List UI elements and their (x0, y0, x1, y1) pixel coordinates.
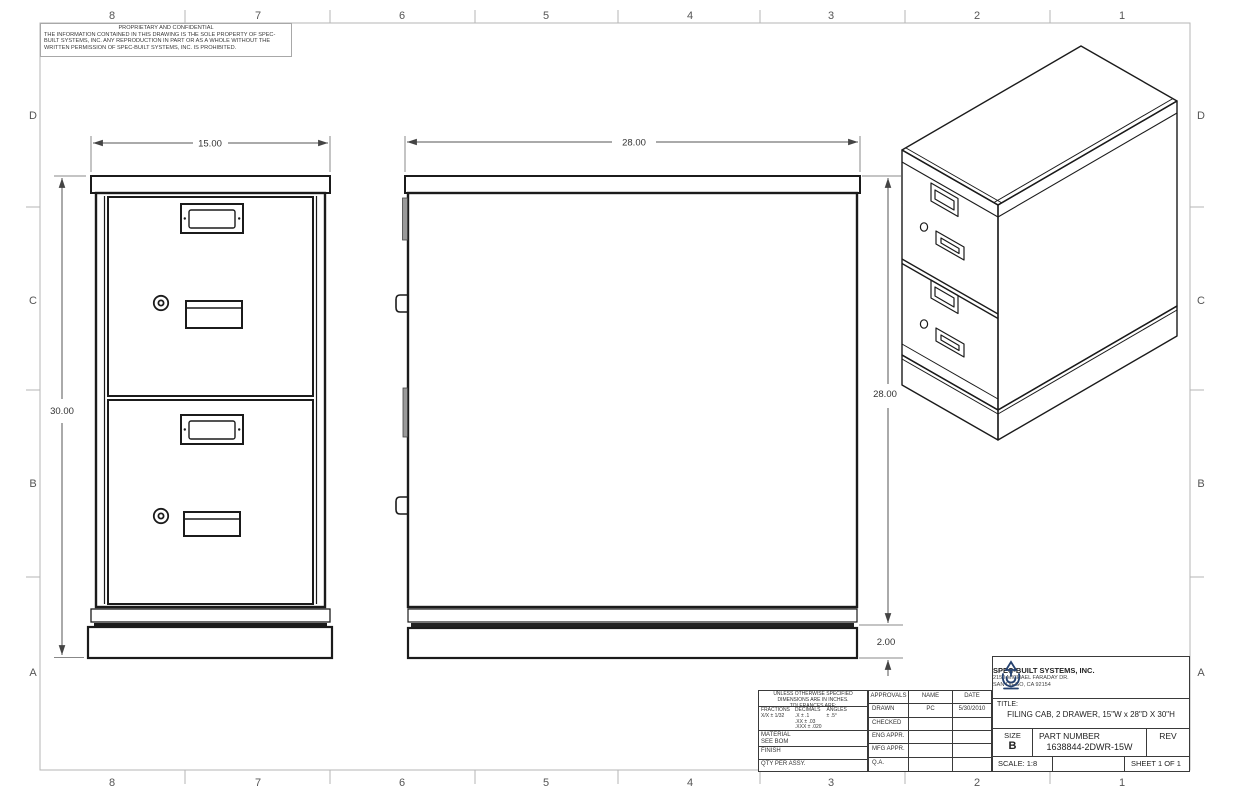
approval-row-name (909, 731, 953, 744)
zone-left-a: A (29, 667, 37, 679)
side-handle-edge-2 (396, 497, 408, 514)
tolerance-block: UNLESS OTHERWISE SPECIFIED DIMENSIONS AR… (758, 690, 868, 772)
drawing-sheet: 8 7 6 5 4 3 2 1 8 7 6 5 4 3 2 1 D C B A … (0, 0, 1237, 800)
drawer-1-lock (154, 296, 168, 310)
date-header: DATE (953, 691, 991, 704)
approval-row-date (953, 718, 991, 731)
zone-right-a: A (1197, 667, 1205, 679)
zone-bottom-2: 2 (974, 777, 980, 789)
approval-row-label: ENG APPR. (869, 731, 909, 744)
scale-value: SCALE: 1:8 (993, 757, 1053, 771)
tolerance-decimals: DECIMALS .X ± .1 .XX ± .03 .XXX ± .020 (795, 708, 822, 729)
approval-row-name (909, 718, 953, 731)
scale-row: SCALE: 1:8 SHEET 1 OF 1 (993, 757, 1189, 771)
approval-row-label: Q.A. (869, 758, 909, 771)
approval-row-date (953, 758, 991, 771)
tolerance-fractions: FRACTIONS X/X ± 1/32 (761, 708, 790, 729)
front-drawer-2 (108, 400, 313, 604)
approval-row-date: 5/30/2010 (953, 704, 991, 717)
drawing-title: FILING CAB, 2 DRAWER, 15"W x 28"D X 30"H (997, 710, 1185, 719)
isometric-view (902, 46, 1177, 440)
qty-row: QTY PER ASSY. (759, 760, 867, 771)
iso-drawer-2-details (920, 280, 964, 357)
dimensions: 15.00 30.00 28.00 28.00 (50, 136, 903, 676)
part-number-cell: PART NUMBER 1638844-2DWR-15W (1033, 729, 1147, 756)
dimension-body-height: 28.00 (859, 176, 903, 625)
front-base (88, 627, 332, 658)
material-row: MATERIAL SEE BOM (759, 731, 867, 747)
side-bottom-rail (408, 609, 857, 622)
size-cell: SIZE B (993, 729, 1033, 756)
zone-bottom-7: 7 (255, 777, 261, 789)
zone-bottom-8: 8 (109, 777, 115, 789)
approval-row-label: MFG APPR. (869, 744, 909, 757)
side-handle-edge-1 (396, 295, 408, 312)
approval-row-label: DRAWN (869, 704, 909, 717)
front-view (88, 176, 332, 658)
zone-left-b: B (29, 478, 36, 490)
drawer-1-label-holder (181, 204, 243, 233)
side-top-cap (405, 176, 860, 193)
side-view (396, 176, 860, 658)
size-value: B (993, 740, 1032, 752)
side-body (408, 193, 857, 607)
zone-top-8: 8 (109, 10, 115, 22)
dim-text-front-width: 15.00 (198, 139, 222, 150)
tolerance-angles: ANGLES ± .5° (827, 708, 847, 729)
zone-top-1: 1 (1119, 10, 1125, 22)
side-label-edge-1 (403, 198, 408, 240)
dim-text-body-height: 28.00 (873, 389, 897, 400)
approval-row-name: PC (909, 704, 953, 717)
drawer-2-label-holder (181, 415, 243, 444)
title-label: TITLE: (997, 701, 1185, 708)
approval-row-label: CHECKED (869, 718, 909, 731)
approval-row-date (953, 731, 991, 744)
zone-bottom-3: 3 (828, 777, 834, 789)
approval-row-date (953, 744, 991, 757)
proprietary-body: THE INFORMATION CONTAINED IN THIS DRAWIN… (44, 32, 288, 52)
approvals-header: APPROVALS (869, 691, 909, 704)
dimension-overall-height: 30.00 (50, 176, 86, 658)
zone-right-c: C (1197, 295, 1205, 307)
dim-text-base-height: 2.00 (877, 637, 896, 648)
tolerance-general-note: UNLESS OTHERWISE SPECIFIED DIMENSIONS AR… (759, 691, 867, 707)
dimension-front-width: 15.00 (91, 136, 330, 172)
rev-cell: REV (1147, 729, 1189, 756)
weight-cell (1053, 757, 1125, 771)
size-row: SIZE B PART NUMBER 1638844-2DWR-15W REV (993, 729, 1189, 757)
front-drawer-1 (108, 197, 313, 396)
finish-row: FINISH (759, 747, 867, 760)
zone-left-c: C (29, 295, 37, 307)
dim-text-overall-height: 30.00 (50, 406, 74, 417)
zone-right-b: B (1197, 478, 1204, 490)
zone-left-d: D (29, 110, 37, 122)
proprietary-heading: PROPRIETARY AND CONFIDENTIAL (44, 25, 288, 32)
proprietary-notice: PROPRIETARY AND CONFIDENTIAL THE INFORMA… (40, 23, 292, 57)
approvals-table: APPROVALS NAME DATE DRAWN PC 5/30/2010 C… (868, 690, 992, 772)
dimension-base-height: 2.00 (859, 637, 903, 676)
approval-row-name (909, 758, 953, 771)
sheet-value: SHEET 1 OF 1 (1125, 757, 1189, 771)
drawer-1-handle (186, 301, 242, 328)
dim-text-depth: 28.00 (622, 138, 646, 149)
drawer-2-handle (184, 512, 240, 536)
zone-top-2: 2 (974, 10, 980, 22)
side-base (408, 628, 857, 658)
title-row: TITLE: FILING CAB, 2 DRAWER, 15"W x 28"D… (993, 699, 1189, 729)
approval-row-name (909, 744, 953, 757)
zone-bottom-4: 4 (687, 777, 693, 789)
side-label-edge-2 (403, 388, 408, 437)
company-logo-icon (998, 659, 1024, 691)
title-block: SPEC-BUILT SYSTEMS, INC. 2150 MICHAEL FA… (992, 656, 1190, 772)
zone-top-3: 3 (828, 10, 834, 22)
front-bottom-rail (91, 609, 330, 622)
zone-bottom-6: 6 (399, 777, 405, 789)
zone-top-4: 4 (687, 10, 693, 22)
dimension-depth: 28.00 (405, 136, 860, 172)
iso-side-face (998, 101, 1177, 410)
zone-bottom-5: 5 (543, 777, 549, 789)
front-top-cap (91, 176, 330, 193)
name-header: NAME (909, 691, 953, 704)
zone-top-6: 6 (399, 10, 405, 22)
zone-top-7: 7 (255, 10, 261, 22)
zone-right-d: D (1197, 110, 1205, 122)
iso-drawer-1-details (920, 183, 964, 260)
company-row: SPEC-BUILT SYSTEMS, INC. 2150 MICHAEL FA… (993, 657, 1189, 699)
drawer-2-lock (154, 509, 168, 523)
tolerance-values: FRACTIONS X/X ± 1/32 DECIMALS .X ± .1 .X… (759, 707, 867, 731)
zone-bottom-1: 1 (1119, 777, 1125, 789)
part-number-value: 1638844-2DWR-15W (1033, 742, 1146, 752)
zone-top-5: 5 (543, 10, 549, 22)
